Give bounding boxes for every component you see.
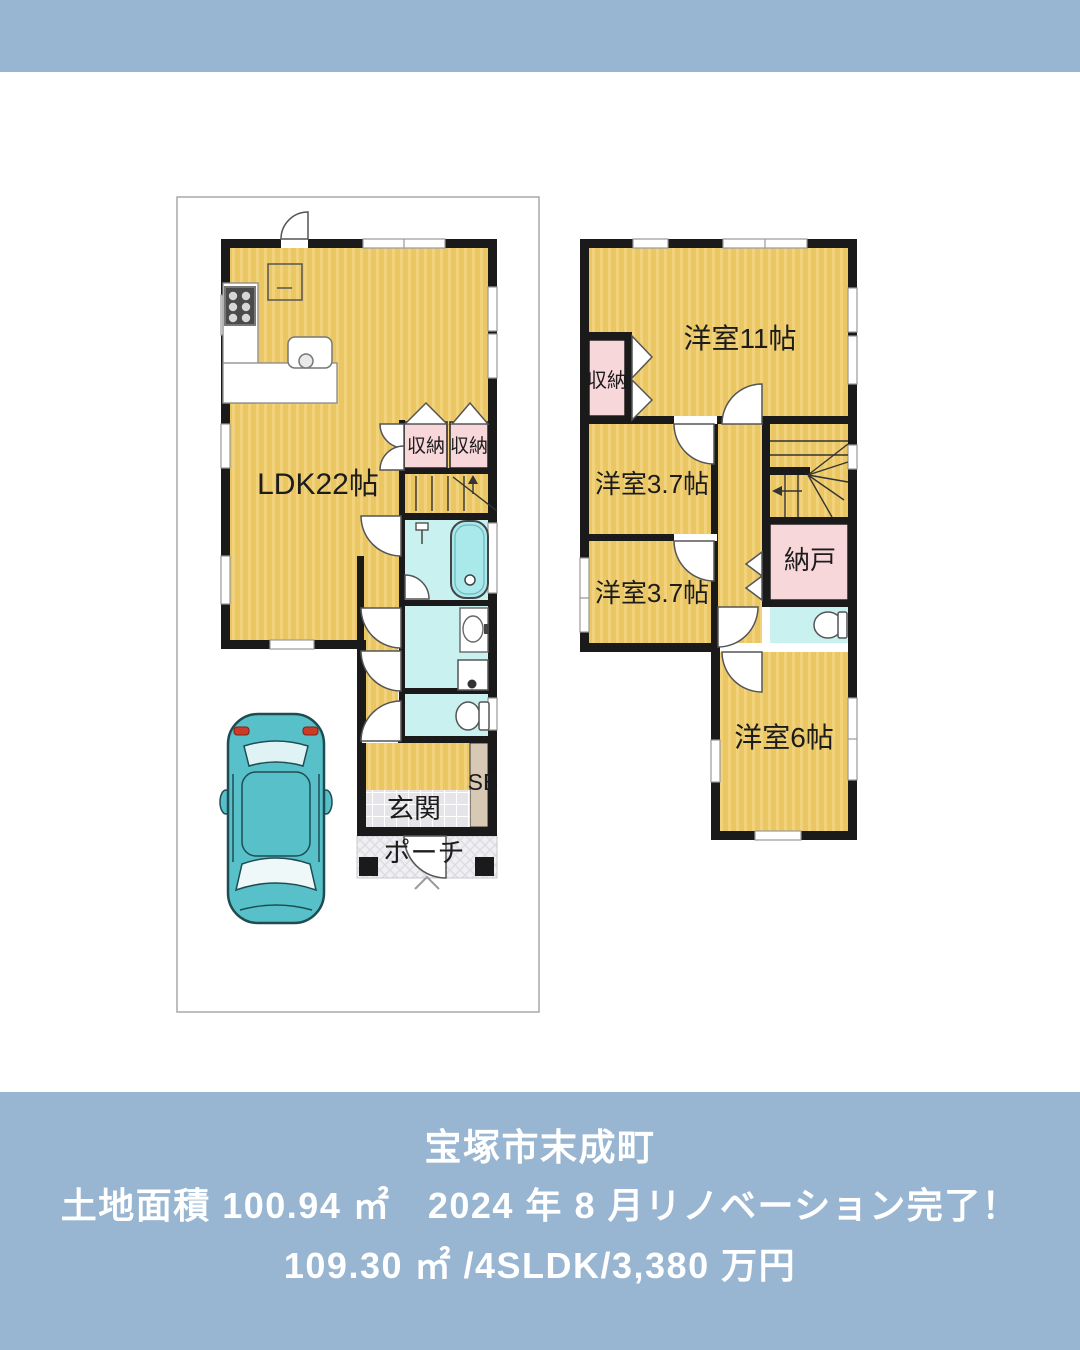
window (221, 424, 230, 468)
door-opening (674, 416, 717, 424)
car-icon (220, 714, 332, 923)
window (488, 334, 497, 378)
storeroom-label: 納戸 (784, 545, 836, 575)
window (848, 336, 857, 384)
toilet-icon (456, 702, 480, 730)
toilet-tank (479, 702, 489, 730)
closet2f-label: 収納 (587, 369, 627, 392)
window (488, 287, 497, 331)
window (580, 558, 589, 598)
washing-machine-drain (468, 680, 477, 689)
wall (762, 600, 857, 607)
wall (404, 600, 497, 606)
sink-drain (299, 354, 313, 368)
bottom-banner: 宝塚市末成町 土地面積 100.94 ㎡ 2024 年 8 月リノベーション完了… (0, 1092, 1080, 1350)
wall (400, 468, 497, 474)
shower-icon (416, 523, 428, 530)
wall (766, 467, 810, 475)
entrance-hall-floor (364, 743, 470, 790)
room6-label: 洋室6帖 (734, 722, 834, 753)
closet-label: 収納 (407, 435, 445, 457)
window (711, 740, 720, 782)
listing-image: LDK22帖 収納 収納 SB 玄関 ポーチ (0, 0, 1080, 1350)
wall (580, 643, 720, 652)
drain (465, 575, 475, 585)
toilet-tank (838, 612, 847, 638)
wall (221, 239, 497, 248)
property-title: 宝塚市末成町 (425, 1126, 656, 1168)
ldk-label: LDK22帖 (257, 468, 379, 501)
window (488, 523, 497, 593)
wall (580, 239, 857, 248)
window (580, 598, 589, 632)
top-banner (0, 0, 1080, 72)
room37b-label: 洋室3.7帖 (595, 578, 709, 608)
wall (580, 416, 857, 424)
kitchen-counter (223, 363, 337, 403)
window (755, 831, 801, 840)
toilet2-fixtures (814, 612, 847, 638)
porch-label: ポーチ (384, 838, 465, 868)
closet-label: 収納 (450, 435, 488, 457)
door-opening (674, 534, 717, 541)
faucet (484, 624, 489, 634)
porch-pillar (475, 857, 494, 876)
window (848, 288, 857, 332)
porch-pillar (359, 857, 378, 876)
window (633, 239, 668, 248)
wall (762, 517, 857, 524)
vanity (460, 608, 488, 652)
wall (357, 827, 497, 836)
property-land-area: 土地面積 100.94 ㎡ 2024 年 8 月リノベーション完了！ (61, 1185, 1020, 1226)
wall (357, 556, 364, 644)
floorplan-graphic: LDK22帖 収納 収納 SB 玄関 ポーチ (0, 0, 1080, 1350)
bathtub-icon (451, 521, 488, 598)
wall (399, 513, 497, 520)
window (270, 640, 314, 649)
property-specs: 109.30 ㎡ /4SLDK/3,380 万円 (284, 1245, 796, 1286)
door-opening (281, 239, 308, 248)
entrance-label: 玄関 (387, 794, 441, 824)
room11-label: 洋室11帖 (683, 323, 796, 354)
wall (762, 524, 770, 607)
shoebox-label: SB (468, 769, 499, 795)
window (221, 556, 230, 604)
wall (580, 332, 632, 340)
window (848, 445, 857, 469)
room37a-label: 洋室3.7帖 (595, 469, 709, 499)
floor1-plan: LDK22帖 収納 収納 SB 玄関 ポーチ (177, 197, 539, 1012)
